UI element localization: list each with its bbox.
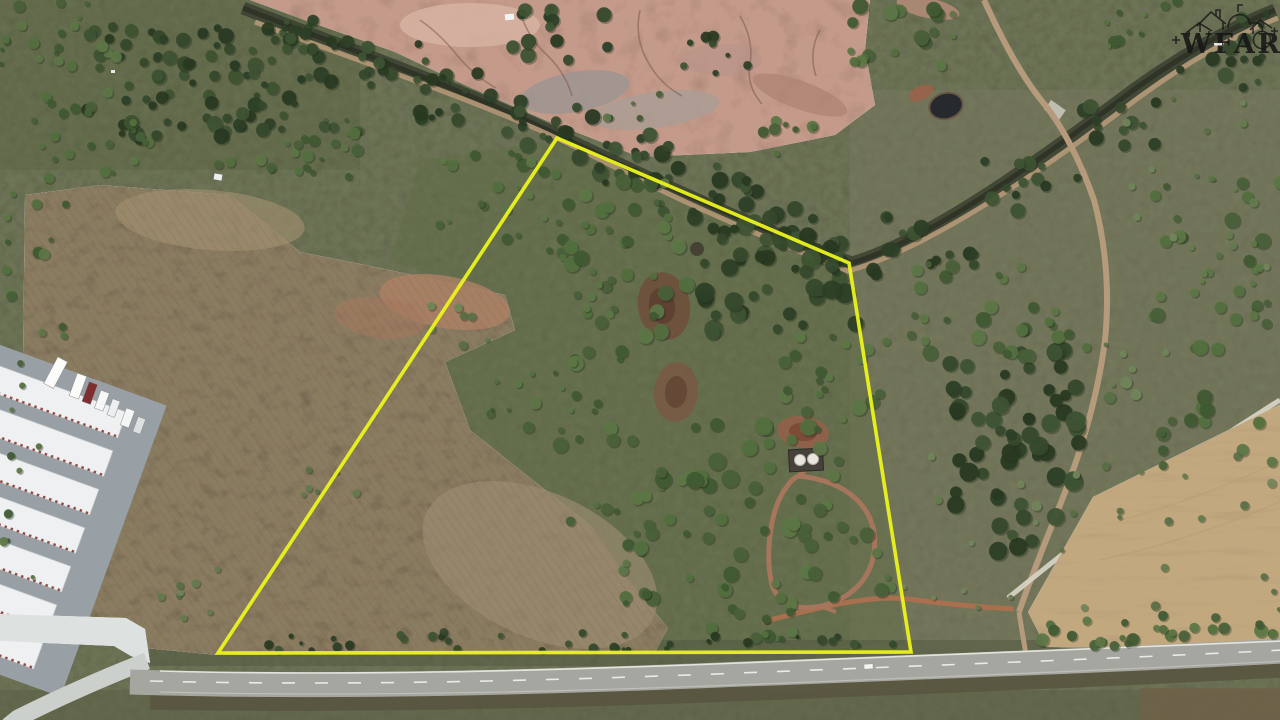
logo-white-dash xyxy=(1214,43,1222,46)
small-dark-pond xyxy=(690,242,704,256)
car-on-road xyxy=(864,664,873,669)
small-shed-badlands xyxy=(505,14,514,21)
logo-text: WFAR xyxy=(1180,29,1280,60)
below-road-dirt xyxy=(1140,688,1280,720)
storage-tank-1 xyxy=(795,455,806,466)
aerial-photo: WFAR xyxy=(0,0,1280,720)
aerial-photo-canvas: WFAR xyxy=(0,0,1280,720)
white-speck xyxy=(111,70,115,73)
